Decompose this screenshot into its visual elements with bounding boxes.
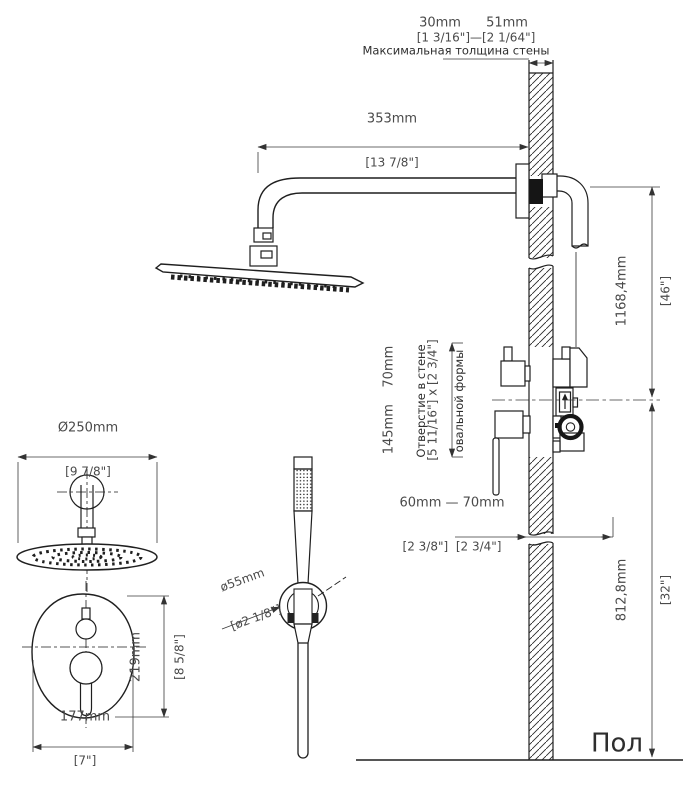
wand-cap: [294, 457, 312, 469]
floor-label: Пол: [591, 729, 643, 758]
dim-arm-to-valve-label: 1168,4mm [46"]: [587, 256, 683, 327]
dim-plate-width-label: 177mm [7"]: [60, 682, 110, 783]
mixer-handle-body: [495, 411, 523, 438]
dim-head-diameter-label: Ø250mm [9 7/8"]: [58, 393, 118, 494]
shower-hose: [298, 643, 308, 758]
diverter-knob-front: [82, 608, 90, 619]
wand-handle: [294, 511, 312, 584]
rain-shower-arm: [258, 178, 529, 228]
diverter-knob: [501, 361, 525, 386]
wall-section: [529, 60, 553, 760]
wand-spray-face: [294, 469, 312, 511]
installation-diagram: 30mm 51mm [1 3/16"]—[2 1/64"] Максимальн…: [0, 0, 683, 800]
wall-hole-caption: Отверстие в стене овальной формы: [389, 344, 479, 457]
dim-plate-height-label: 219mm [8 5/8"]: [101, 632, 202, 682]
dim-valve-depth-label: 60mm — 70mm [2 3/8"] [2 3/4"]: [399, 468, 504, 569]
wall-thickness-caption: Максимальная толщина стены: [362, 45, 549, 58]
dim-wall-thickness-max-label: 51mm: [486, 17, 528, 32]
rain-head-side-view: [156, 228, 363, 290]
dim-valve-to-floor-label: 812,8mm [32"]: [587, 559, 683, 622]
dim-wall-thickness-min-label: 30mm: [419, 17, 461, 32]
handheld-shower: [280, 457, 347, 758]
flow-indicator-box: [556, 388, 578, 416]
diverter-stem: [504, 347, 512, 361]
arm-wall-flange: [516, 164, 529, 218]
dim-arm-length-label: 353mm [13 7/8"]: [365, 84, 418, 185]
pipe-coupling: [542, 174, 557, 197]
wall-penetration-block: [529, 179, 543, 204]
